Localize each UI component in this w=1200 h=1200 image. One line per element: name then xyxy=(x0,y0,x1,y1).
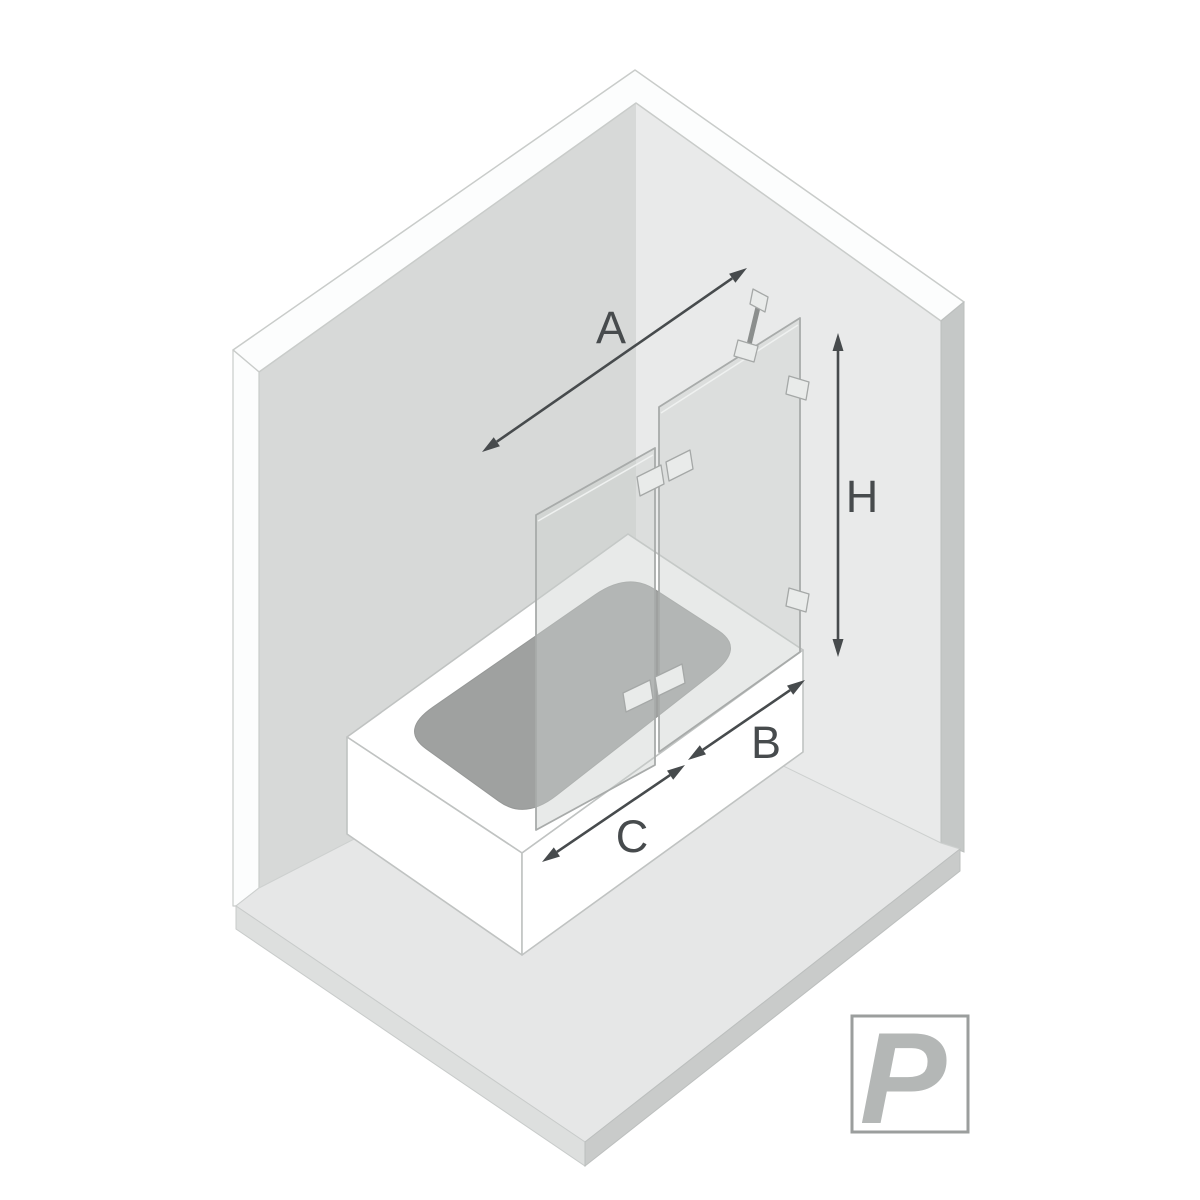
panel-type-badge-letter: P xyxy=(860,1005,947,1151)
left-wall-edge-strip xyxy=(233,350,259,906)
dimension-label-h: H xyxy=(846,471,879,522)
bath-screen-diagram: A H B C P xyxy=(0,0,1200,1200)
right-wall-edge-strip xyxy=(941,302,964,852)
dimension-label-b: B xyxy=(751,717,781,768)
panel-type-badge: P xyxy=(852,1005,968,1151)
dimension-label-c: C xyxy=(616,811,649,862)
diagram-canvas: A H B C P xyxy=(0,0,1200,1200)
dimension-label-a: A xyxy=(596,302,626,353)
glass-door-panel xyxy=(536,448,655,830)
